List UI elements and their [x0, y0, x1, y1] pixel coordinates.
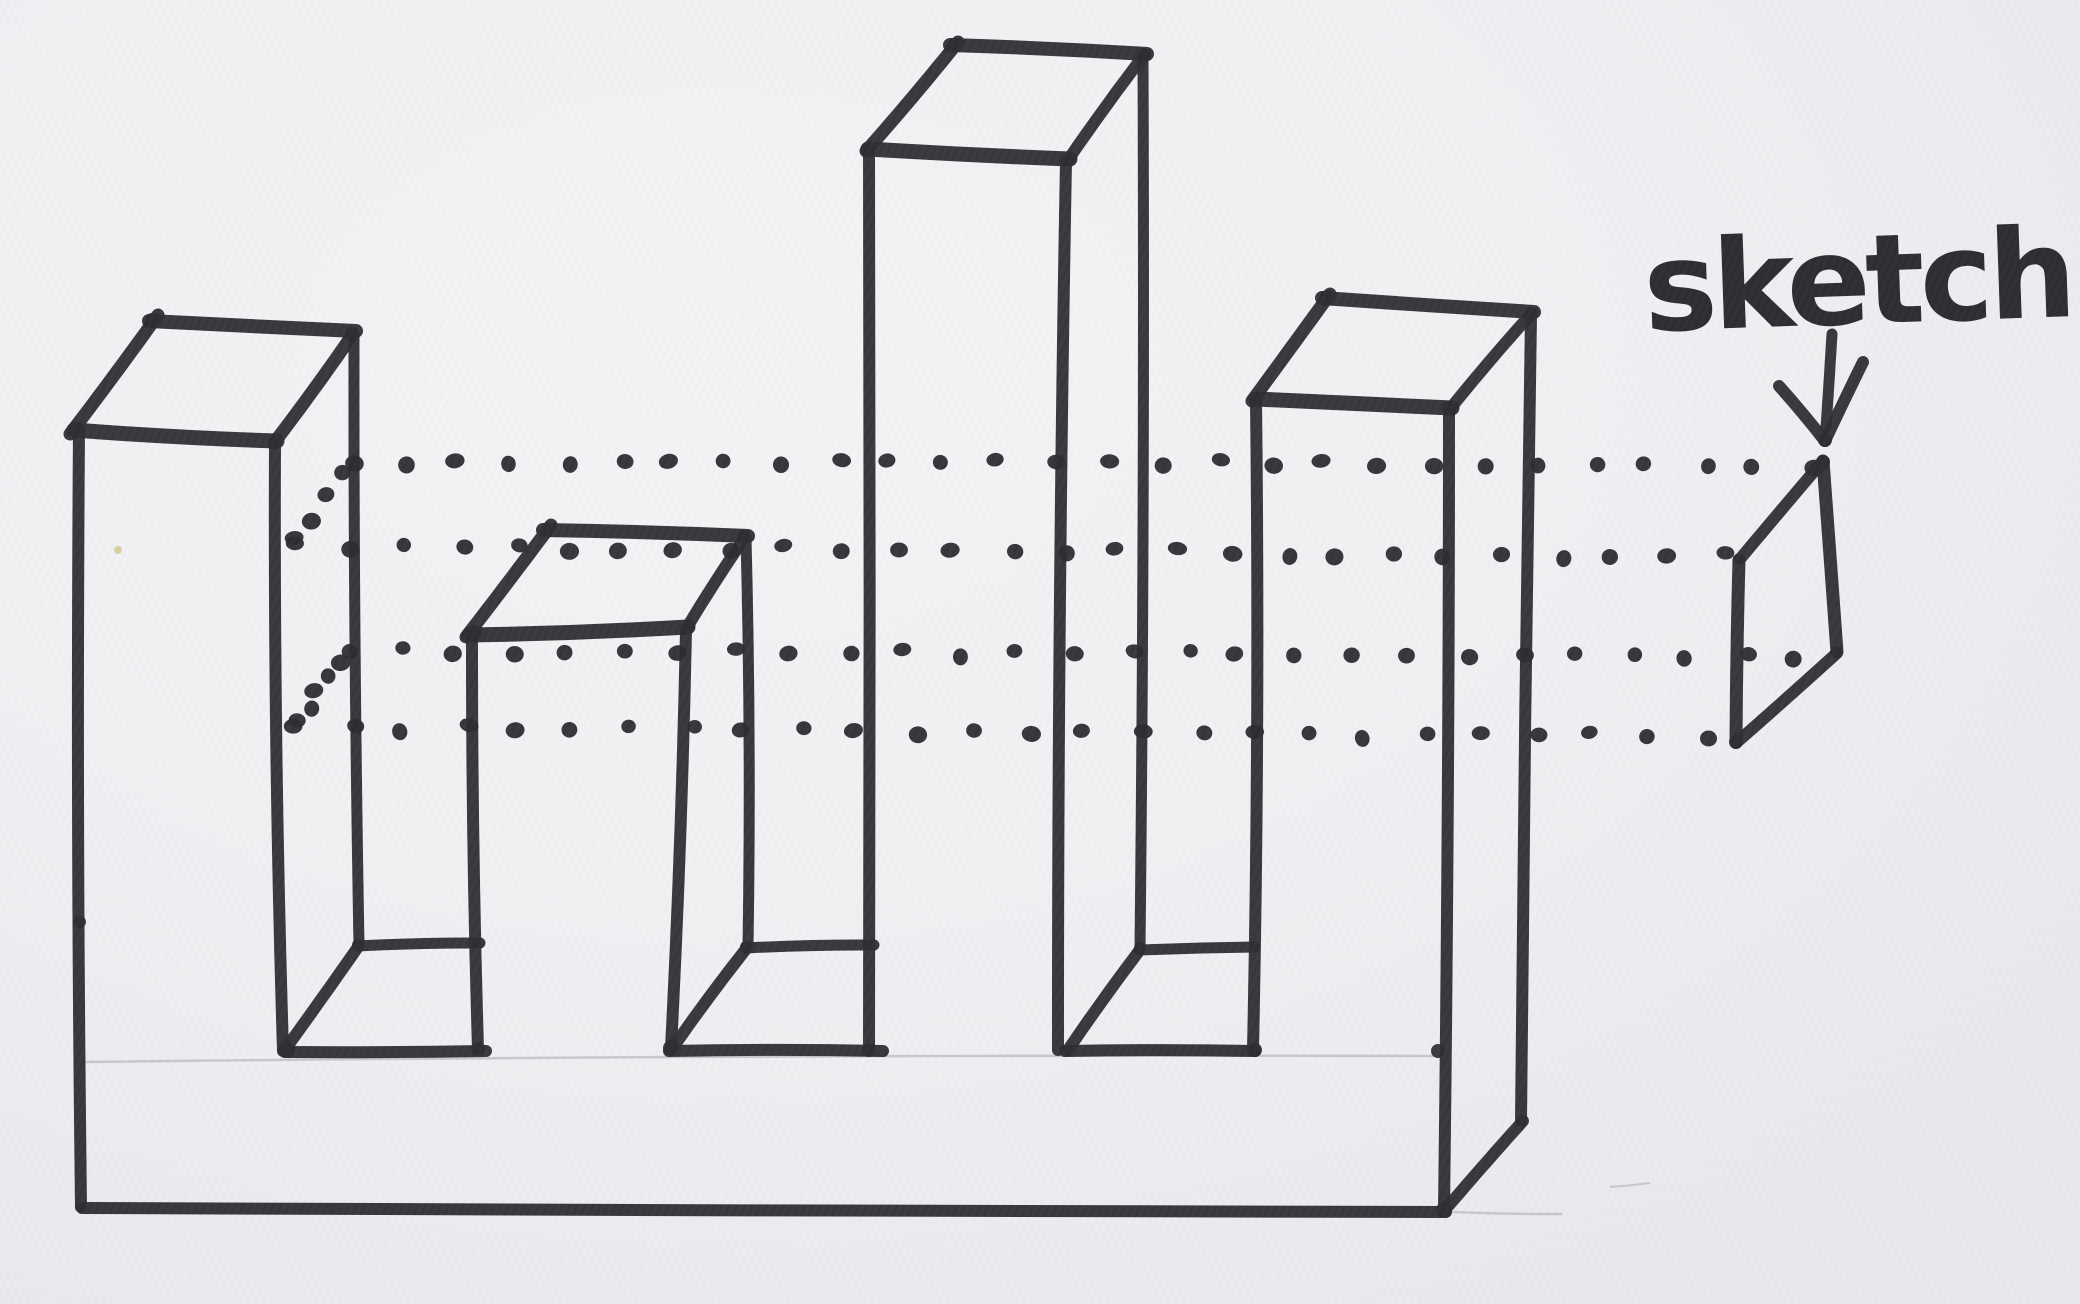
projection-dot	[1222, 545, 1244, 563]
projection-row-back-bottom	[341, 641, 1804, 669]
projection-dot	[1301, 725, 1317, 741]
right-edge	[1823, 461, 1837, 652]
ink-blob	[1431, 1044, 1445, 1058]
projection-dot	[966, 723, 983, 738]
top-front-edge	[1256, 399, 1452, 408]
ink-blob	[740, 941, 752, 953]
projection-dot	[1716, 546, 1734, 560]
ink-blob	[352, 939, 364, 951]
projection-dot	[939, 541, 960, 559]
projection-dot	[843, 645, 860, 662]
ink-blob	[737, 530, 751, 544]
front-left-edge	[869, 150, 870, 1050]
bottom-depth-edge	[1736, 653, 1837, 743]
projection-dot	[1167, 541, 1188, 557]
back-right-edge	[354, 335, 359, 945]
back-right-edge	[1521, 315, 1531, 1121]
projection-dot	[1477, 458, 1494, 475]
top-back-edge	[1322, 298, 1534, 312]
projection-dot	[1195, 724, 1214, 742]
ink-blob	[1442, 401, 1456, 415]
back-right-edge	[746, 538, 749, 946]
projection-dot	[505, 721, 526, 740]
projection-dot	[1154, 457, 1172, 474]
floor-back-edge	[746, 945, 874, 948]
ink-blob	[345, 327, 359, 341]
projection-dot	[772, 456, 789, 474]
projection-dot	[831, 452, 852, 469]
projection-dot	[562, 455, 579, 474]
ink-blob	[862, 1043, 876, 1057]
ink-blob	[1436, 1202, 1452, 1218]
extrusion-diagram: sketch	[0, 0, 2080, 1304]
projection-dot	[620, 719, 636, 735]
projection-dot	[397, 538, 412, 552]
top-left-edge	[1252, 294, 1330, 401]
projection-dot	[1311, 453, 1332, 469]
projection-dot	[1343, 647, 1360, 663]
floor-back-edge	[1139, 947, 1255, 950]
projection-dot	[1638, 728, 1656, 745]
projection-dot	[727, 642, 746, 656]
top-back-edge	[950, 45, 1147, 54]
projection-dot	[1580, 724, 1599, 740]
floor-front-edge	[669, 1050, 883, 1051]
front-right-edge	[275, 442, 283, 1051]
projection-dot	[560, 543, 579, 560]
projection-dot	[1281, 547, 1299, 567]
projection-dot	[346, 717, 366, 735]
floor-left-edge	[1068, 951, 1139, 1050]
sketch-profile-rectangle	[1736, 461, 1837, 743]
projection-dot	[1555, 549, 1573, 568]
notch-1	[284, 943, 486, 1052]
ink-blob	[1248, 1043, 1262, 1057]
projection-dot	[1460, 647, 1480, 666]
projection-dot	[442, 644, 463, 664]
projection-dot	[395, 641, 411, 655]
projection-dot	[1419, 726, 1436, 742]
projection-row-front-top	[286, 536, 1735, 568]
base	[82, 1121, 1523, 1212]
top-front-edge	[469, 627, 688, 635]
projection-dot	[890, 542, 908, 557]
projection-dot	[500, 455, 517, 473]
projection-dot	[301, 512, 322, 531]
ink-blob	[145, 313, 159, 327]
arrow-head-left-wing	[1779, 386, 1825, 441]
bottom-right-guideline	[1450, 1212, 1562, 1214]
left-edge	[1736, 560, 1739, 742]
top-back-edge	[149, 321, 356, 331]
floor-left-edge	[284, 947, 358, 1051]
section-top-depth-dots	[284, 463, 352, 546]
projection-row-back-top	[344, 452, 1825, 478]
projection-dot	[1700, 457, 1717, 475]
tower-1	[70, 315, 359, 1207]
projection-dot	[908, 726, 928, 744]
projection-dot	[1783, 649, 1804, 669]
ink-blob	[663, 1040, 679, 1056]
pencil-guidelines	[83, 1056, 1650, 1214]
projection-dot	[1105, 541, 1125, 557]
projection-dot	[932, 454, 950, 472]
scanned-paper: sketch	[0, 0, 2080, 1304]
projection-dot	[1353, 728, 1371, 748]
projection-dot	[1264, 457, 1284, 475]
floor-front-edge	[285, 1051, 486, 1052]
projection-dot	[1601, 548, 1620, 566]
tower-4	[1252, 294, 1534, 1210]
projection-dot	[455, 538, 475, 556]
ink-corner-blobs	[74, 38, 1832, 1218]
tower-3	[866, 42, 1147, 1050]
floor-left-edge	[672, 949, 746, 1049]
projection-dot	[1182, 643, 1199, 659]
ink-blob	[1134, 942, 1146, 954]
top-front-edge	[868, 149, 1070, 159]
notch-2	[669, 945, 883, 1051]
projection-dot	[1386, 546, 1402, 561]
projection-dot	[1492, 546, 1510, 563]
top-front-edge	[74, 430, 277, 441]
projection-dot	[303, 700, 320, 718]
ink-blob	[471, 1042, 485, 1056]
projection-dot	[1324, 547, 1345, 567]
ink-blob	[1320, 290, 1334, 304]
projection-dot	[1021, 725, 1042, 743]
projection-dot	[796, 721, 812, 736]
projection-dot	[505, 646, 524, 663]
top-left-edge	[866, 42, 958, 151]
top-right-edge	[274, 334, 353, 443]
projection-dot	[1100, 454, 1120, 469]
projection-dot	[1211, 452, 1231, 468]
sketch-label: sketch	[1641, 202, 2074, 361]
front-right-edge	[671, 630, 686, 1048]
paper-speck	[114, 546, 122, 554]
outer-left-edge	[78, 428, 81, 1207]
projection-dot	[444, 452, 465, 469]
projection-dot	[773, 537, 794, 554]
bottom-front-edge	[82, 1208, 1446, 1212]
projection-dot	[390, 722, 409, 742]
projection-dot	[832, 542, 850, 559]
front-right-edge	[1444, 410, 1449, 1210]
projection-dot	[1072, 723, 1091, 740]
projection-dot	[303, 681, 325, 700]
projection-dot	[662, 540, 684, 560]
top-back-edge	[543, 530, 748, 536]
projection-dot	[607, 541, 628, 561]
ink-blob	[948, 38, 962, 52]
projection-dot	[397, 456, 415, 474]
projection-dot	[1634, 455, 1652, 473]
top-depth-edge	[1740, 462, 1822, 559]
ink-blob	[466, 625, 482, 641]
projection-dot	[320, 668, 336, 685]
projection-dot	[555, 643, 574, 661]
projection-dot	[714, 452, 732, 469]
projection-dot	[1675, 649, 1692, 668]
section-bottom-depth-dots	[288, 654, 351, 728]
notch-3	[1065, 947, 1255, 1051]
projection-dot	[560, 720, 579, 739]
floor-back-edge	[358, 943, 480, 946]
ink-blob	[1524, 307, 1538, 321]
ink-blob	[1137, 48, 1151, 62]
top-left-edge	[70, 315, 158, 434]
extruded-solid	[70, 42, 1534, 1212]
projection-dot	[1397, 647, 1415, 664]
projection-dot	[1530, 727, 1547, 742]
projection-dot	[657, 452, 679, 471]
projection-dot	[893, 642, 912, 657]
projection-dot	[1366, 457, 1386, 475]
projection-dot	[1065, 646, 1084, 662]
projection-dot	[1425, 458, 1444, 475]
bottom-right-edge	[1444, 1121, 1523, 1211]
front-right-edge	[1058, 161, 1066, 1050]
front-left-edge	[472, 634, 478, 1049]
floor-front-edge	[1065, 1050, 1255, 1051]
projection-dot	[1700, 730, 1717, 746]
projection-dot	[1657, 548, 1677, 565]
projection-row-front-bottom	[284, 716, 1717, 748]
projection-dot	[985, 452, 1004, 468]
projection-dot	[1567, 646, 1583, 661]
projection-dot	[1742, 457, 1761, 477]
top-right-edge	[1450, 314, 1531, 409]
projection-dot	[842, 721, 864, 740]
back-right-edge	[1140, 56, 1143, 948]
projection-dot	[1285, 647, 1302, 664]
projection-dot	[616, 453, 635, 470]
projection-dot	[316, 485, 336, 503]
projection-dot	[953, 648, 968, 665]
projection-dot	[1006, 643, 1023, 658]
projection-dot	[1627, 647, 1643, 663]
projection-dot	[877, 452, 896, 469]
projection-dot	[778, 644, 799, 663]
top-left-edge	[466, 525, 551, 637]
projection-dot	[1224, 645, 1245, 664]
ink-blob	[74, 916, 86, 928]
projection-dot	[1005, 542, 1024, 561]
top-right-edge	[1068, 55, 1144, 160]
ink-blob	[279, 1042, 295, 1058]
projection-dot	[617, 644, 633, 659]
tower-2	[466, 525, 749, 1049]
projection-dot	[1472, 726, 1491, 740]
projection-dot	[1589, 456, 1606, 472]
stray-mark	[1610, 1183, 1650, 1187]
